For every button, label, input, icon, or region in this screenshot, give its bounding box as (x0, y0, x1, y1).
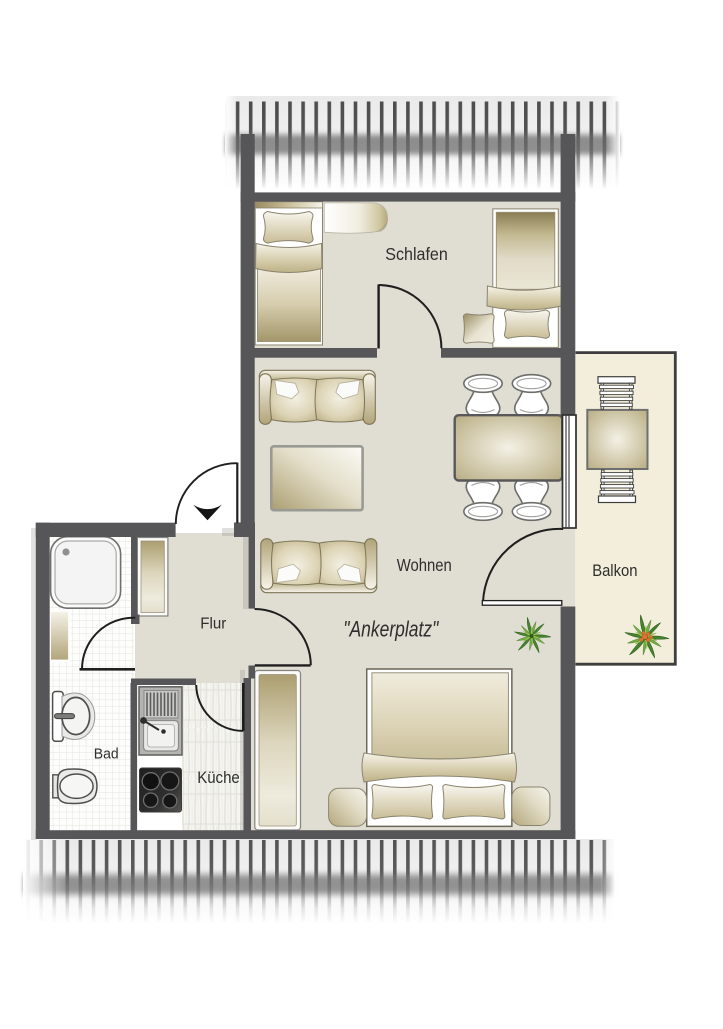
svg-text:Balkon: Balkon (592, 561, 637, 580)
svg-text:Küche: Küche (197, 769, 240, 787)
svg-text:"Ankerplatz": "Ankerplatz" (343, 616, 439, 641)
svg-text:Schlafen: Schlafen (385, 244, 448, 264)
svg-text:Wohnen: Wohnen (397, 555, 452, 575)
svg-text:Flur: Flur (200, 616, 226, 633)
svg-text:Bad: Bad (94, 745, 119, 762)
